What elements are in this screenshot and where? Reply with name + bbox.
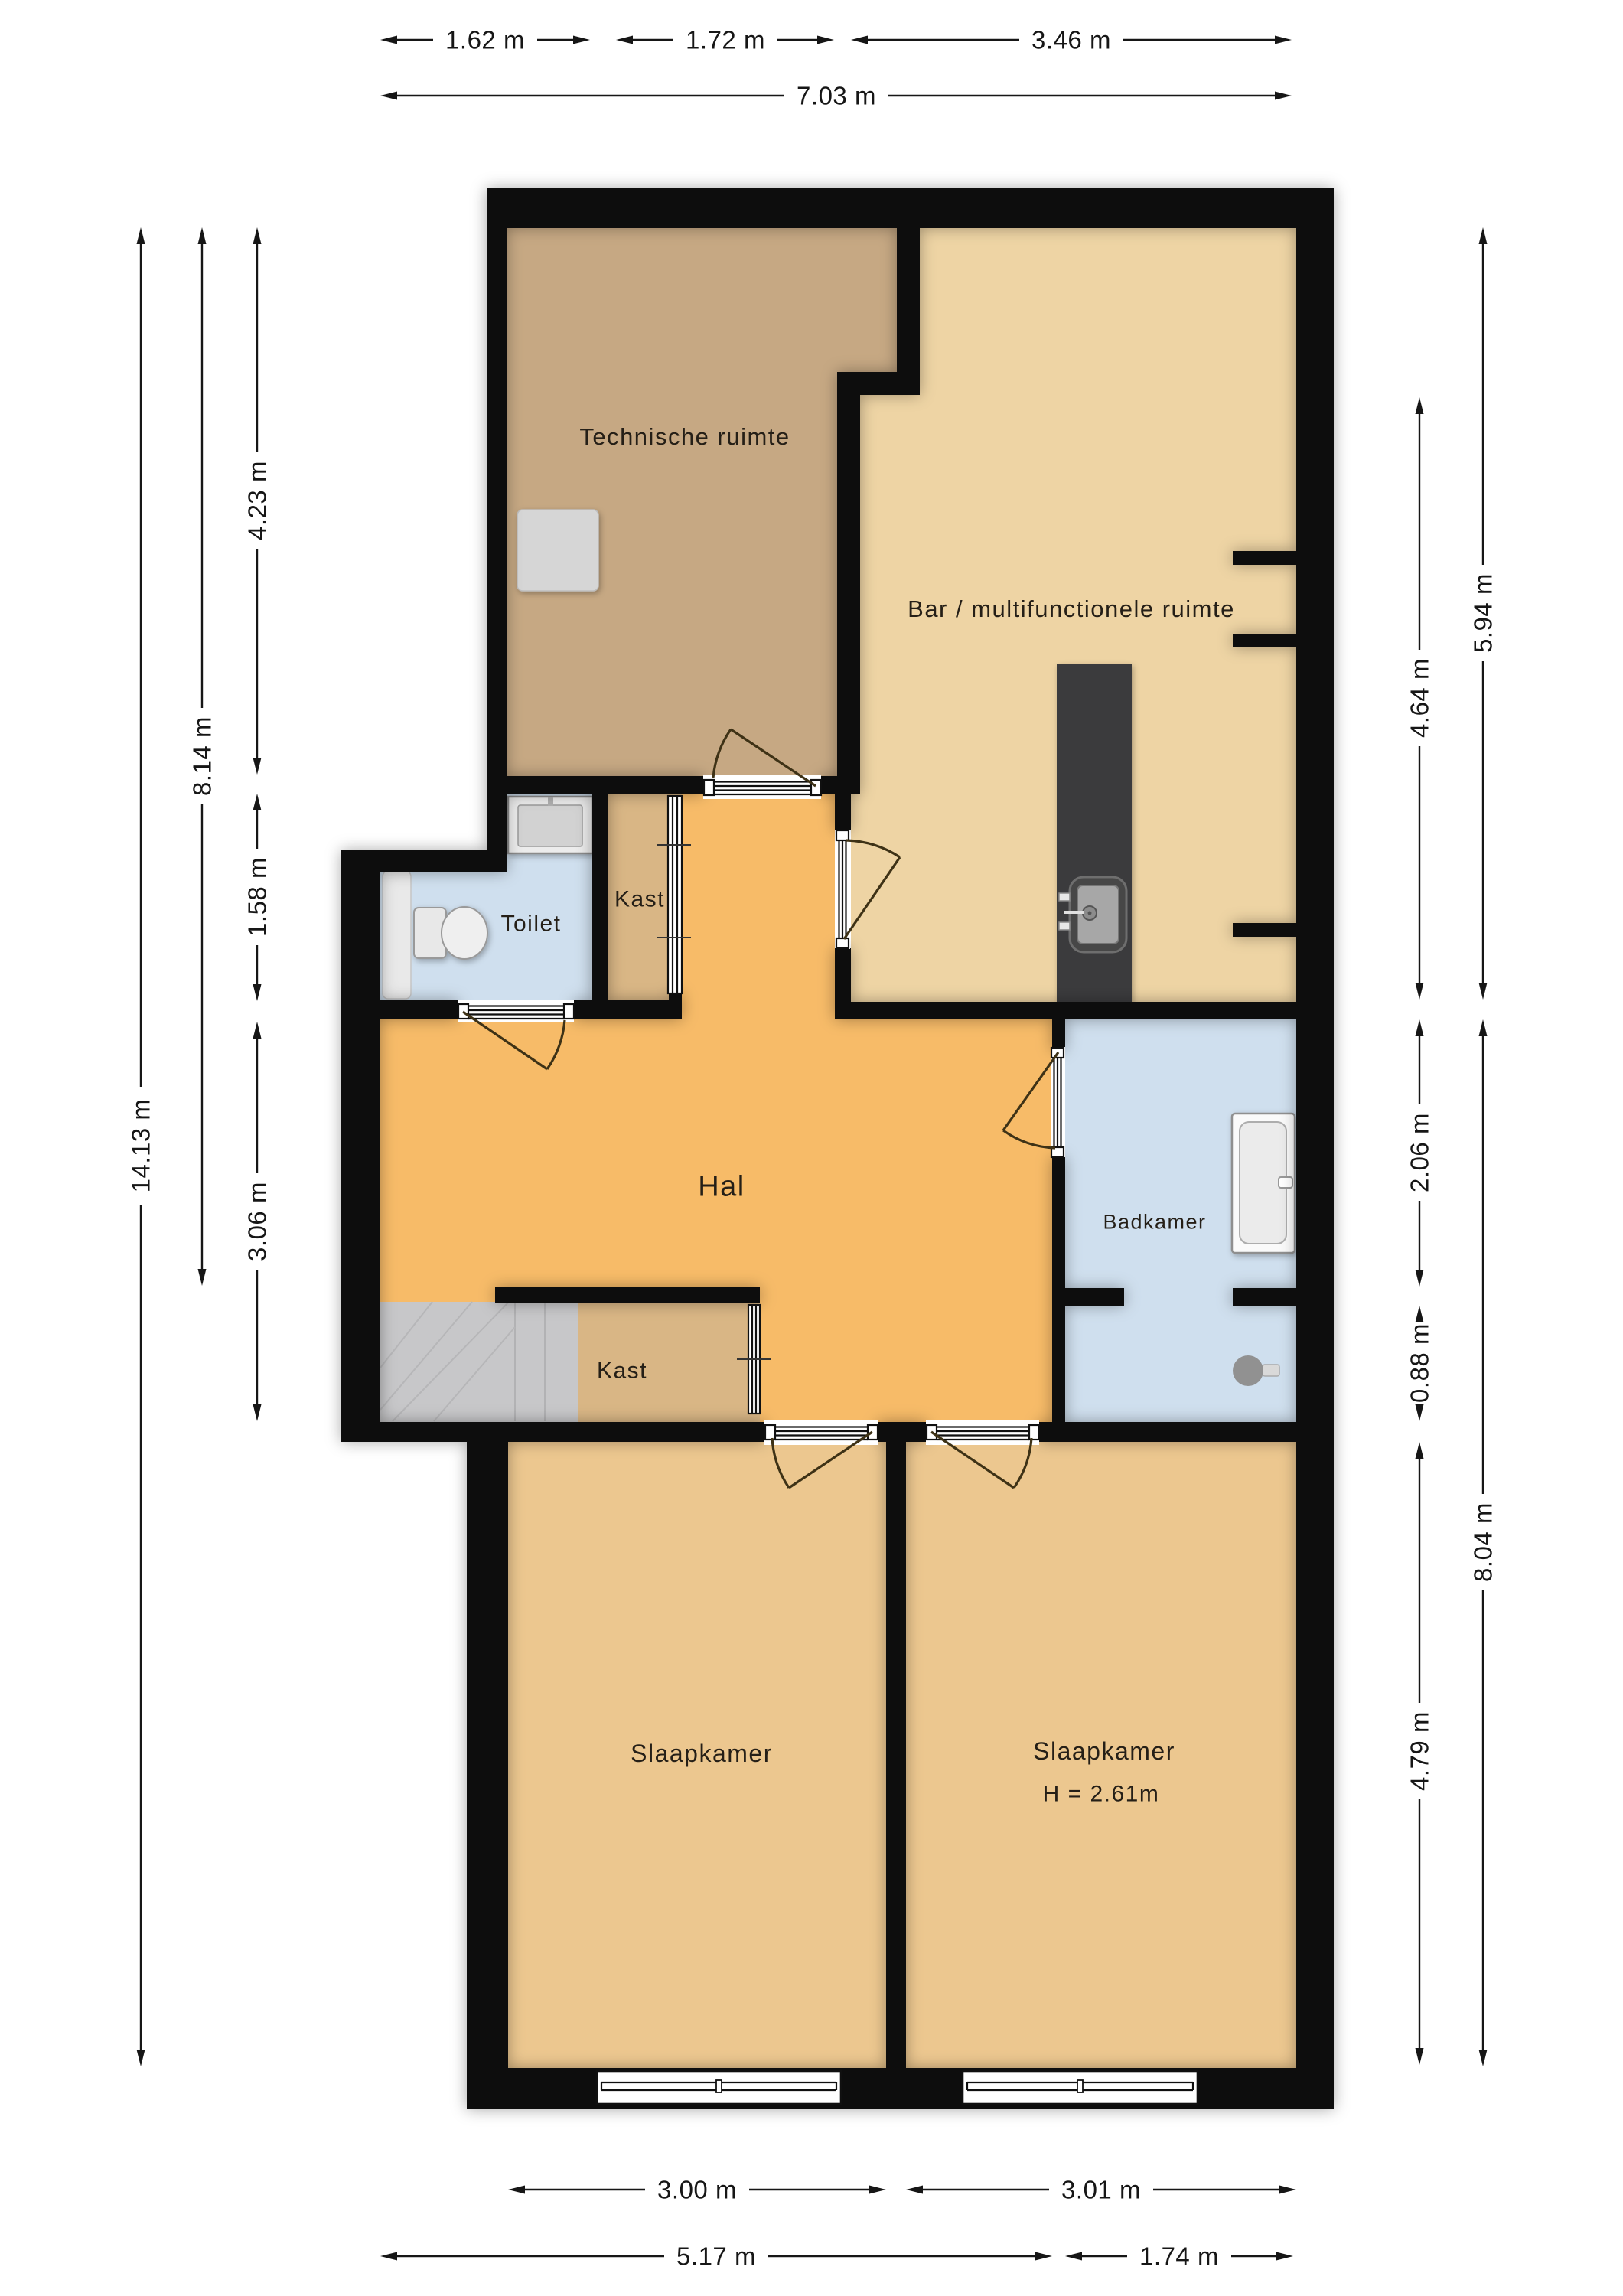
svg-text:3.00 m: 3.00 m [657, 2176, 737, 2204]
svg-text:1.62 m: 1.62 m [445, 26, 525, 54]
svg-text:4.23 m: 4.23 m [243, 461, 272, 540]
svg-text:3.06 m: 3.06 m [243, 1182, 272, 1261]
svg-text:8.04 m: 8.04 m [1469, 1502, 1498, 1582]
svg-text:14.13 m: 14.13 m [127, 1099, 155, 1193]
svg-text:Slaapkamer: Slaapkamer [1033, 1737, 1175, 1765]
svg-text:Slaapkamer: Slaapkamer [631, 1740, 773, 1767]
svg-text:1.74 m: 1.74 m [1139, 2242, 1219, 2271]
svg-text:7.03 m: 7.03 m [797, 82, 876, 110]
svg-text:Technische ruimte: Technische ruimte [579, 423, 790, 450]
svg-text:Hal: Hal [698, 1170, 745, 1202]
svg-text:2.06 m: 2.06 m [1406, 1113, 1434, 1192]
svg-text:H = 2.61m: H = 2.61m [1043, 1782, 1160, 1807]
svg-text:1.72 m: 1.72 m [686, 26, 765, 54]
svg-text:5.94 m: 5.94 m [1469, 573, 1498, 653]
svg-text:4.64 m: 4.64 m [1406, 658, 1434, 738]
svg-text:0.88 m: 0.88 m [1406, 1323, 1434, 1403]
svg-text:3.01 m: 3.01 m [1061, 2176, 1141, 2204]
svg-text:Kast: Kast [614, 887, 665, 912]
svg-text:8.14 m: 8.14 m [188, 716, 217, 796]
svg-text:Badkamer: Badkamer [1103, 1210, 1206, 1233]
svg-text:5.17 m: 5.17 m [676, 2242, 756, 2271]
svg-text:4.79 m: 4.79 m [1406, 1711, 1434, 1791]
svg-text:3.46 m: 3.46 m [1031, 26, 1111, 54]
svg-text:Kast: Kast [597, 1358, 647, 1384]
svg-text:Toilet: Toilet [500, 912, 561, 937]
svg-text:Bar / multifunctionele ruimte: Bar / multifunctionele ruimte [908, 595, 1235, 622]
svg-text:1.58 m: 1.58 m [243, 857, 272, 937]
